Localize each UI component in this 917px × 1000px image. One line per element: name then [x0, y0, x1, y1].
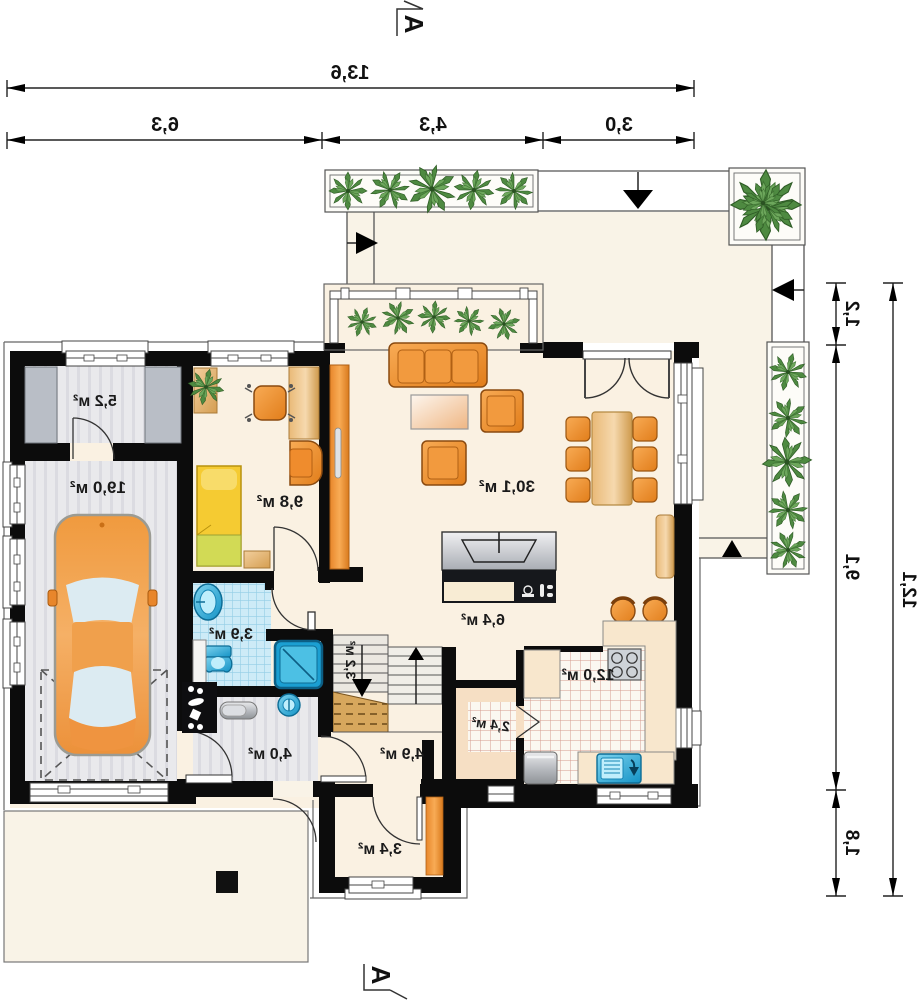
svg-text:3,0: 3,0 — [605, 114, 633, 136]
svg-text:9,1: 9,1 — [841, 553, 862, 580]
svg-text:1,8: 1,8 — [841, 830, 862, 856]
svg-text:30,1 м²: 30,1 м² — [479, 477, 535, 496]
svg-text:5,2 м²: 5,2 м² — [73, 393, 117, 410]
svg-text:4,0 м²: 4,0 м² — [248, 746, 292, 763]
svg-text:9,8 м²: 9,8 м² — [256, 492, 303, 511]
svg-text:12,1: 12,1 — [898, 571, 917, 608]
svg-text:3,2 м²: 3,2 м² — [343, 640, 359, 679]
svg-text:19,0 м²: 19,0 м² — [70, 478, 126, 497]
svg-text:1,2: 1,2 — [841, 301, 862, 327]
svg-text:3,9 м²: 3,9 м² — [209, 626, 253, 643]
svg-text:13,6: 13,6 — [331, 62, 370, 84]
svg-text:4,3: 4,3 — [419, 114, 447, 136]
svg-text:6,4 м²: 6,4 м² — [461, 612, 505, 629]
svg-text:3,4 м²: 3,4 м² — [358, 841, 402, 858]
svg-text:A: A — [366, 966, 396, 985]
svg-text:4,9 м²: 4,9 м² — [380, 746, 424, 763]
svg-text:12,0 м²: 12,0 м² — [562, 667, 615, 684]
svg-text:6,3: 6,3 — [151, 114, 179, 136]
svg-text:A: A — [399, 15, 429, 34]
